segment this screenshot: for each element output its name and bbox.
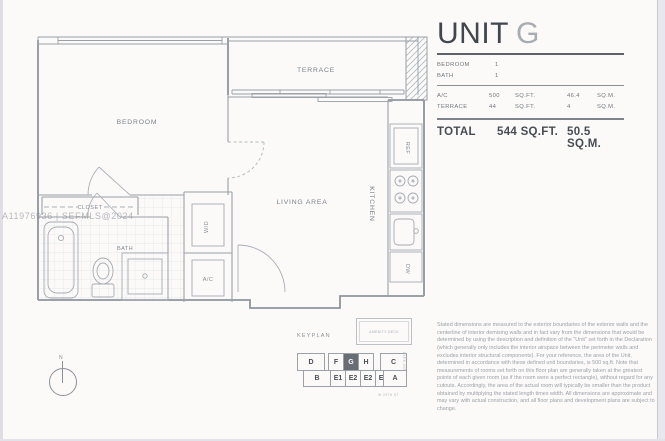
unit-info-panel: UNITG BEDROOM 1 BATH 1 A/C 500 SQ.FT. 46… [437, 18, 658, 150]
keyplan-note-label: AMENITY DECK [359, 321, 409, 342]
total-label: TOTAL [437, 126, 497, 150]
compass-circle [49, 368, 77, 396]
unit-title-letter: G [516, 17, 540, 50]
hall-tile-floor [138, 196, 184, 216]
washer-dryer-label: W/D [204, 221, 210, 233]
bedroom-window [38, 37, 228, 44]
total-sqft: 544 SQ.FT. [497, 126, 567, 150]
mls-watermark: A11976936 | SEFMLS@2024 [2, 211, 134, 221]
ac-sqft-unit: SQ.FT. [515, 93, 567, 99]
bedroom-count-value: 1 [495, 62, 624, 68]
ac-label: A/C [203, 277, 214, 283]
room-count-row-bedroom: BEDROOM 1 [437, 59, 624, 70]
terrace-sqm-unit: SQ.M. [597, 104, 624, 110]
page-edge-right [657, 0, 665, 441]
keyplan-title: KEYPLAN [297, 333, 331, 339]
hall-tile-floor-2 [168, 217, 184, 301]
bath-count-label: BATH [437, 73, 495, 79]
bedroom-count-label: BEDROOM [437, 62, 495, 68]
keyplan-unit-d: D [297, 353, 325, 371]
bath-label: BATH [117, 246, 133, 252]
terrace-sqft-unit: SQ.FT. [515, 104, 567, 110]
unit-title: UNITG [437, 18, 658, 50]
floor-plan-drawing: BEDROOM TERRACE LIVING AREA KITCHEN CLOS… [0, 0, 435, 320]
total-row: TOTAL 544 SQ.FT. 50.5 SQ.M. [437, 120, 624, 150]
unit-title-main: UNIT [437, 17, 509, 50]
bedroom-dashed-door [228, 142, 264, 178]
keyplan-street-bottom-label: W 29TH ST [378, 393, 399, 397]
dishwasher-label: DW [404, 264, 410, 274]
terrace-label: TERRACE [297, 67, 335, 74]
total-sqm: 50.5 SQ.M. [567, 126, 624, 150]
bath-count-value: 1 [495, 73, 624, 79]
kitchen-label: KITCHEN [368, 186, 375, 221]
ac-sqm-value: 46.4 [567, 93, 597, 99]
kitchen-sink [390, 214, 422, 250]
terrace-area-label: TERRACE [437, 104, 489, 110]
terrace-sqm-value: 4 [567, 104, 597, 110]
sliding-door [228, 94, 392, 102]
keyplan-unit-b: B [303, 370, 331, 387]
living-area-label: LIVING AREA [276, 199, 327, 206]
ac-sqm-unit: SQ.M. [597, 93, 624, 99]
keyplan-street-right-label: PARK AVE [402, 352, 406, 388]
terrace-sqft-value: 44 [489, 104, 515, 110]
north-arrow-icon: N [48, 355, 78, 397]
room-count-row-bath: BATH 1 [437, 70, 624, 81]
keyplan-unit-h: H [358, 353, 374, 371]
structural-column-hatch [406, 37, 427, 100]
area-row-terrace: TERRACE 44 SQ.FT. 4 SQ.M. [437, 101, 624, 112]
keyplan-unit-e2-right: E2 [360, 370, 376, 387]
area-row-ac: A/C 500 SQ.FT. 46.4 SQ.M. [437, 90, 624, 101]
terrace-walls [228, 37, 418, 95]
floorplan-sheet: { "floor_plan": { "rooms": { "bedroom": … [0, 0, 665, 441]
keyplan-unit-e2-left: E2 [345, 370, 361, 387]
refrigerator-label: REF [404, 142, 410, 155]
bedroom-label: BEDROOM [117, 119, 158, 126]
keyplan-unit-g-highlighted: G [343, 353, 359, 371]
ac-sqft-value: 500 [489, 93, 515, 99]
ac-area-label: A/C [437, 93, 489, 99]
keyplan-grid: D F G H C B E1 E2 E2 E1 A [297, 353, 409, 388]
keyplan-unit-f: F [328, 353, 344, 371]
cooktop [390, 170, 422, 212]
keyplan-note-box: AMENITY DECK [356, 318, 412, 345]
legal-disclaimer: Stated dimensions are measured to the ex… [437, 322, 658, 414]
keyplan-unit-e1-left: E1 [330, 370, 346, 387]
